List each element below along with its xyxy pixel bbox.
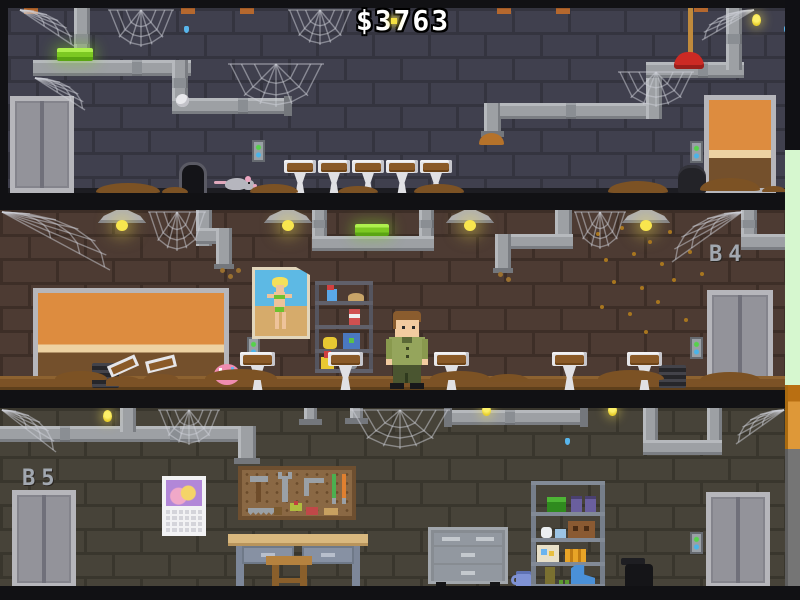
fly-icon bbox=[660, 262, 664, 266]
elevator-door-split bbox=[40, 101, 44, 188]
cobweb-icon bbox=[228, 62, 324, 110]
saw-handle bbox=[274, 507, 282, 515]
poster-leg bbox=[282, 312, 286, 329]
drawer-handle bbox=[476, 537, 494, 541]
dirt-in-sink bbox=[423, 163, 449, 172]
pipe bbox=[643, 440, 722, 455]
spray-nozzle-red bbox=[327, 285, 334, 290]
dirt-in-sink bbox=[243, 355, 272, 365]
cobweb-icon bbox=[734, 408, 786, 446]
poster-arm bbox=[267, 294, 274, 298]
pipe bbox=[33, 60, 191, 76]
green-tube-light bbox=[57, 48, 93, 61]
sink-basin bbox=[420, 160, 452, 173]
calendar-cell bbox=[179, 516, 183, 520]
shelf-board bbox=[531, 538, 605, 542]
dirt-spill bbox=[106, 376, 140, 386]
calendar-cell bbox=[166, 510, 170, 514]
pipe bbox=[299, 419, 322, 425]
hair-side bbox=[393, 320, 396, 329]
cobweb-icon bbox=[0, 408, 58, 454]
hand bbox=[386, 359, 392, 365]
saw-blade-icon bbox=[248, 508, 274, 515]
dirt-pile bbox=[250, 184, 298, 193]
shelf-board bbox=[531, 562, 605, 566]
sink-pedestal bbox=[552, 365, 587, 390]
pipe bbox=[419, 220, 434, 228]
sink-basin bbox=[328, 352, 363, 366]
sink-basin bbox=[552, 352, 587, 366]
dirt-spill bbox=[144, 374, 178, 384]
calendar-cell bbox=[191, 522, 195, 526]
sink-basin bbox=[627, 352, 662, 366]
dirt-in-sink bbox=[437, 355, 466, 365]
elevator-door-split bbox=[736, 497, 740, 583]
red-bottle-band bbox=[349, 314, 360, 318]
shelf-board bbox=[531, 481, 605, 485]
poster-face bbox=[276, 285, 284, 292]
fly-icon bbox=[648, 240, 652, 244]
dirt-pile bbox=[414, 184, 464, 193]
dirt-in-sink bbox=[149, 358, 174, 371]
firefly-icon bbox=[752, 14, 761, 26]
calendar-cell bbox=[185, 510, 189, 514]
face bbox=[395, 320, 419, 337]
hat bbox=[348, 293, 364, 301]
blue-boot bbox=[571, 565, 595, 584]
dirt-pile bbox=[430, 371, 490, 380]
sink-basin bbox=[352, 160, 384, 173]
dirt-in-sink bbox=[389, 163, 415, 172]
floor-label-b5: B5 bbox=[22, 466, 61, 491]
shelf-board bbox=[315, 281, 373, 285]
elevator-door-split bbox=[42, 495, 46, 583]
sink-basin bbox=[240, 352, 275, 366]
olive-bottle bbox=[545, 567, 555, 584]
pipe bbox=[234, 458, 260, 464]
pipe bbox=[505, 410, 515, 425]
cobweb-icon bbox=[18, 8, 76, 48]
workbench-top bbox=[228, 534, 368, 546]
screwdriver-tip bbox=[332, 498, 336, 504]
hammer-head bbox=[250, 476, 268, 482]
fly-icon bbox=[672, 278, 676, 282]
shoe bbox=[390, 383, 404, 389]
photo-card bbox=[537, 545, 559, 562]
pipe bbox=[312, 220, 327, 228]
green-box bbox=[547, 497, 566, 512]
fly-icon bbox=[604, 258, 608, 262]
cobweb-icon bbox=[700, 8, 756, 42]
sink-with-dirt[interactable] bbox=[386, 160, 418, 194]
pipe bbox=[172, 78, 188, 88]
calendar-cell bbox=[166, 522, 170, 526]
pipe bbox=[566, 103, 576, 119]
plunger-handle bbox=[688, 8, 693, 54]
shelf-board bbox=[315, 325, 373, 329]
egg-sac bbox=[176, 94, 189, 107]
pipe bbox=[60, 426, 70, 442]
purple-jar bbox=[571, 496, 582, 512]
lamp-bulb bbox=[464, 220, 476, 231]
pipe bbox=[74, 34, 90, 44]
dust-speck bbox=[236, 268, 241, 273]
shelf-board bbox=[315, 301, 373, 305]
calendar-cell bbox=[166, 528, 170, 532]
fly-icon bbox=[600, 305, 604, 309]
calendar-cell bbox=[185, 522, 189, 526]
ceiling-lamp bbox=[622, 210, 670, 236]
sink-pedestal bbox=[328, 365, 363, 390]
storage-shelf bbox=[531, 481, 605, 588]
dust-speck bbox=[220, 268, 225, 273]
cobweb-icon bbox=[158, 408, 220, 448]
fly-icon bbox=[684, 318, 688, 322]
wrench-icon bbox=[282, 476, 288, 502]
dirt-in-sink bbox=[355, 163, 381, 172]
elevator-bottom-right[interactable] bbox=[706, 492, 770, 588]
green-dot bbox=[559, 580, 563, 584]
floor-divider-1 bbox=[0, 193, 785, 210]
wall-calendar bbox=[162, 476, 206, 536]
sink-basin bbox=[434, 352, 469, 366]
photo-pixel bbox=[549, 551, 554, 556]
green-tube-light bbox=[355, 224, 389, 236]
game-viewport: $3763 B4 bbox=[0, 0, 800, 600]
red-dot-item bbox=[294, 501, 298, 505]
sink-with-dirt[interactable] bbox=[552, 352, 587, 390]
wrench-prong bbox=[288, 472, 292, 479]
blue-item bbox=[555, 529, 566, 538]
white-cloth bbox=[541, 527, 552, 538]
light-switch[interactable] bbox=[690, 337, 703, 359]
stool-seat bbox=[266, 556, 312, 565]
spray-bottle-blue bbox=[327, 289, 337, 301]
pliers-red-icon bbox=[306, 507, 318, 515]
dirt-pile bbox=[55, 371, 107, 380]
button bbox=[406, 347, 409, 350]
brown-box bbox=[568, 521, 595, 538]
cobweb-icon bbox=[148, 210, 206, 254]
fly-icon bbox=[640, 286, 644, 290]
light-switch[interactable] bbox=[690, 532, 703, 554]
ceiling-lamp bbox=[446, 210, 494, 236]
calendar-cell bbox=[172, 528, 176, 532]
calendar-cell bbox=[172, 510, 176, 514]
pipe bbox=[216, 228, 232, 268]
calendar-cell bbox=[198, 528, 202, 532]
fly-icon bbox=[644, 330, 648, 334]
shelf-post bbox=[600, 481, 605, 588]
stool-rung bbox=[272, 578, 307, 583]
screwdriver-orange-icon bbox=[342, 474, 346, 498]
dirt-in-sink bbox=[331, 355, 360, 365]
arm bbox=[422, 339, 428, 361]
right-strip-orange bbox=[785, 385, 800, 449]
dirt-in-sink bbox=[287, 163, 313, 172]
ceiling-lamp bbox=[264, 210, 312, 236]
rolling-tool-cabinet bbox=[428, 527, 508, 590]
dust-speck bbox=[506, 277, 511, 282]
box-hole bbox=[573, 526, 578, 531]
cobweb-icon bbox=[0, 210, 112, 272]
cobweb-icon bbox=[350, 408, 450, 452]
eye bbox=[402, 326, 405, 329]
dust-speck bbox=[498, 272, 503, 277]
fly-icon bbox=[628, 312, 632, 316]
cabinet-drawer[interactable] bbox=[434, 565, 502, 581]
right-edge-dark bbox=[785, 0, 800, 150]
pipe bbox=[495, 234, 511, 272]
hand bbox=[422, 359, 428, 365]
box-hole bbox=[584, 526, 589, 531]
dirt-pile bbox=[338, 186, 378, 193]
pipe bbox=[120, 408, 136, 432]
pipe bbox=[580, 407, 588, 427]
leg-gap bbox=[405, 373, 408, 383]
screwdriver-tip bbox=[342, 498, 346, 504]
cobweb-icon bbox=[108, 8, 174, 50]
calendar-cell bbox=[166, 516, 170, 520]
elevator-bottom-left[interactable] bbox=[12, 490, 76, 588]
dirt-pile bbox=[762, 186, 786, 192]
wrench-prong bbox=[278, 472, 282, 479]
calendar-cell bbox=[179, 510, 183, 514]
dirt-in-sink bbox=[630, 355, 659, 365]
pipe bbox=[132, 60, 142, 76]
drawer-handle bbox=[461, 553, 475, 557]
dirt-in-sink bbox=[555, 355, 584, 365]
floor-divider-2 bbox=[0, 390, 785, 408]
plunger-head bbox=[674, 52, 704, 69]
pegboard-tools bbox=[238, 466, 356, 520]
calendar-picture bbox=[166, 480, 202, 506]
cobweb-icon bbox=[618, 70, 694, 110]
cobweb-icon bbox=[33, 76, 87, 112]
calendar-cell bbox=[185, 516, 189, 520]
drawer-handle bbox=[321, 553, 335, 557]
sparkle-icon bbox=[391, 18, 397, 24]
calendar-cell bbox=[172, 516, 176, 520]
calendar-cell bbox=[179, 522, 183, 526]
eye bbox=[412, 326, 415, 329]
light-switch[interactable] bbox=[252, 140, 265, 162]
lamp-bulb bbox=[640, 220, 652, 231]
left-edge-bar bbox=[0, 8, 8, 193]
orange-sponge bbox=[565, 549, 586, 562]
pipe bbox=[493, 268, 513, 273]
firefly-icon bbox=[103, 410, 112, 422]
pipe bbox=[741, 234, 785, 250]
poster-leg bbox=[275, 312, 279, 329]
sink-with-dirt[interactable] bbox=[328, 352, 363, 390]
calendar-grid bbox=[166, 510, 202, 532]
square-tool-icon bbox=[304, 478, 309, 496]
tipped-sink[interactable] bbox=[106, 360, 140, 386]
calendar-cell bbox=[191, 510, 195, 514]
janitor-character[interactable] bbox=[386, 311, 428, 389]
pinup-poster bbox=[252, 267, 310, 339]
fly-icon bbox=[632, 252, 636, 256]
fly-icon bbox=[612, 280, 616, 284]
shelf-post bbox=[531, 481, 536, 588]
poster-bikini-top bbox=[274, 295, 285, 299]
dirt-in-sink bbox=[111, 358, 136, 374]
cobweb-icon bbox=[670, 210, 744, 264]
pipe bbox=[312, 236, 434, 251]
shoe bbox=[410, 383, 424, 389]
calendar-cell bbox=[191, 528, 195, 532]
rat-eye bbox=[248, 182, 250, 184]
photo-pixel bbox=[541, 549, 547, 555]
sink-basin bbox=[318, 160, 350, 173]
calendar-cell bbox=[185, 528, 189, 532]
pipe bbox=[448, 410, 582, 425]
dirt-pile bbox=[700, 372, 760, 381]
calendar-cell bbox=[179, 528, 183, 532]
light-switch[interactable] bbox=[690, 141, 703, 163]
sink-basin bbox=[284, 160, 316, 173]
screwdriver-green-icon bbox=[332, 474, 336, 498]
dirt-pile bbox=[487, 374, 529, 382]
calendar-cell bbox=[191, 516, 195, 520]
dust-speck bbox=[228, 274, 233, 279]
sink-basin bbox=[386, 160, 418, 173]
right-strip-green bbox=[785, 150, 800, 385]
cabinet-drawer[interactable] bbox=[434, 547, 502, 563]
drawer-handle bbox=[461, 571, 475, 575]
blue-box-dot bbox=[349, 338, 354, 343]
calendar-cell bbox=[198, 510, 202, 514]
fly-icon bbox=[656, 300, 660, 304]
dirt-in-sink bbox=[321, 163, 347, 172]
calendar-cell bbox=[198, 522, 202, 526]
right-strip-gray bbox=[785, 449, 800, 586]
tipped-sink[interactable] bbox=[144, 358, 178, 384]
cobweb-icon bbox=[574, 210, 626, 252]
purple-jar bbox=[585, 496, 596, 512]
fly-icon bbox=[700, 272, 704, 276]
rubber-gloves bbox=[323, 337, 337, 349]
poster-arm bbox=[285, 294, 292, 298]
brush-item bbox=[324, 508, 338, 515]
pipe bbox=[238, 426, 256, 462]
drawer-handle bbox=[442, 537, 460, 541]
bottom-bar bbox=[0, 586, 800, 600]
workbench bbox=[228, 534, 368, 590]
cabinet-drawer-top[interactable] bbox=[434, 533, 502, 545]
water-drip bbox=[565, 438, 570, 445]
lamp-bulb bbox=[116, 220, 128, 231]
lamp-bulb bbox=[282, 220, 294, 231]
tipped-basin bbox=[145, 355, 177, 374]
calendar-cell bbox=[198, 516, 202, 520]
button bbox=[406, 355, 409, 358]
green-dot bbox=[565, 580, 569, 584]
water-drip bbox=[184, 26, 189, 33]
money-display: $3763 bbox=[317, 4, 489, 37]
shelf-board bbox=[531, 512, 605, 516]
collar bbox=[402, 337, 412, 343]
calendar-cell bbox=[172, 522, 176, 526]
arm bbox=[386, 339, 392, 361]
